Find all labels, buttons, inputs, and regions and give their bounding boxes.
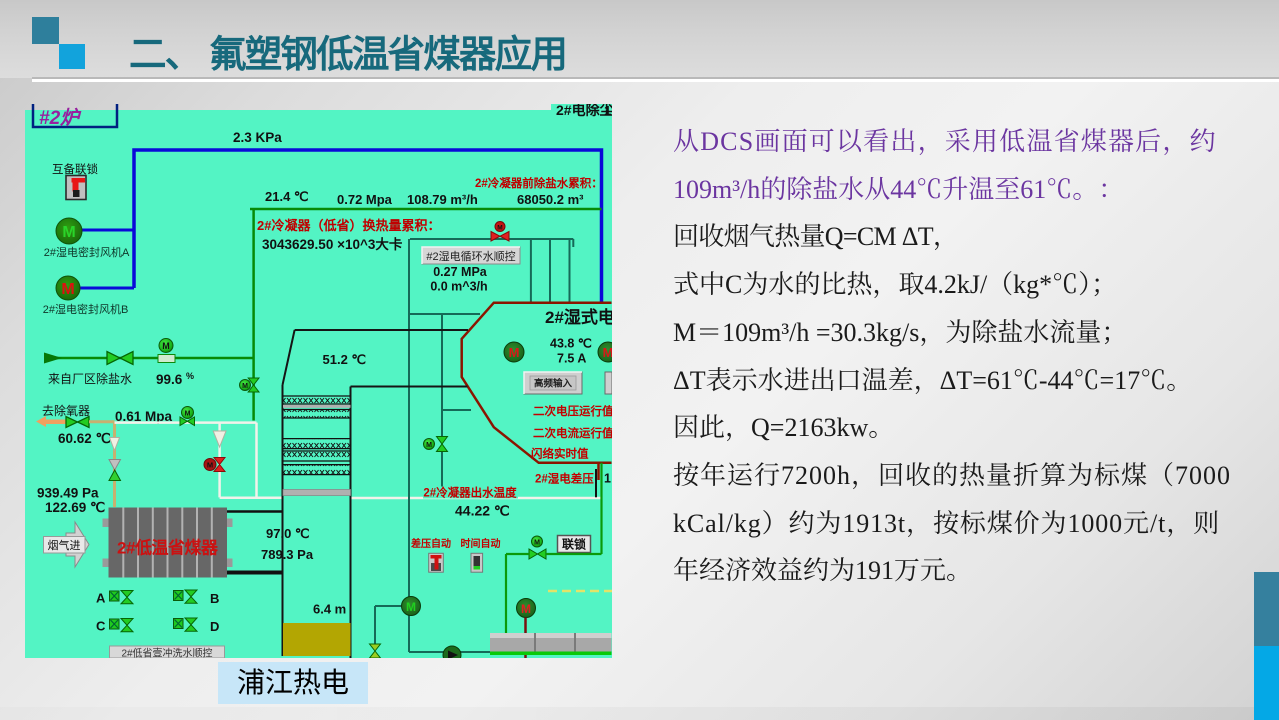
svg-text:烟气进: 烟气进 — [48, 538, 81, 552]
svg-text:M: M — [185, 411, 191, 418]
svg-text:联锁: 联锁 — [562, 537, 586, 552]
svg-text:2#湿电密封风机B: 2#湿电密封风机B — [43, 302, 129, 316]
svg-text:97.0 ℃: 97.0 ℃ — [266, 526, 310, 541]
svg-text:43.8 ℃: 43.8 ℃ — [550, 337, 592, 351]
svg-text:B: B — [210, 591, 219, 606]
svg-text:21.4 ℃: 21.4 ℃ — [265, 189, 309, 204]
svg-text:3043629.50 ×10^3大卡: 3043629.50 ×10^3大卡 — [262, 236, 403, 252]
svg-text:108.79 m³/h: 108.79 m³/h — [407, 192, 478, 207]
svg-text:#2炉: #2炉 — [39, 107, 82, 129]
svg-text:60.62 ℃: 60.62 ℃ — [58, 431, 112, 446]
svg-text:0.72 Mpa: 0.72 Mpa — [337, 192, 393, 207]
svg-text:44.22 ℃: 44.22 ℃ — [455, 503, 510, 519]
svg-text:M: M — [62, 224, 75, 241]
svg-text:M: M — [61, 281, 74, 298]
svg-text:7.5 A: 7.5 A — [557, 352, 586, 366]
svg-text:2#低温省煤器: 2#低温省煤器 — [117, 538, 219, 558]
svg-text:1: 1 — [604, 472, 611, 486]
svg-text:M: M — [534, 540, 540, 547]
svg-text:1: 1 — [604, 104, 611, 118]
svg-text:2#湿式电除尘: 2#湿式电除尘 — [545, 307, 612, 327]
svg-text:2#冷凝器出水温度: 2#冷凝器出水温度 — [423, 486, 517, 500]
svg-text:二次电压运行值: 二次电压运行值 — [533, 404, 612, 418]
svg-text:D: D — [210, 619, 219, 634]
svg-text:M: M — [162, 341, 170, 351]
svg-text:0.27 MPa: 0.27 MPa — [433, 265, 488, 279]
svg-text:来自厂区除盐水: 来自厂区除盐水 — [48, 371, 132, 386]
svg-text:M: M — [426, 442, 432, 449]
svg-text:2#湿电差压: 2#湿电差压 — [535, 472, 594, 486]
svg-text:高频输入: 高频输入 — [534, 378, 573, 390]
svg-text:122.69 ℃: 122.69 ℃ — [45, 500, 106, 515]
svg-text:2#湿电密封风机A: 2#湿电密封风机A — [44, 245, 130, 259]
svg-text:A: A — [96, 591, 106, 606]
svg-text:M: M — [509, 345, 520, 360]
svg-text:#2湿电循环水顺控: #2湿电循环水顺控 — [426, 249, 515, 263]
svg-text:939.49 Pa: 939.49 Pa — [37, 486, 99, 501]
svg-text:M: M — [242, 383, 248, 390]
svg-text:68050.2 m³: 68050.2 m³ — [517, 192, 584, 207]
svg-text:差压自动: 差压自动 — [411, 537, 451, 550]
svg-text:去除氧器: 去除氧器 — [42, 403, 90, 418]
svg-text:时间自动: 时间自动 — [461, 537, 501, 550]
svg-text:0.0 m^3/h: 0.0 m^3/h — [430, 280, 487, 294]
svg-text:2#冷凝器前除盐水累积：: 2#冷凝器前除盐水累积： — [475, 176, 603, 190]
svg-text:二次电流运行值: 二次电流运行值 — [533, 426, 612, 440]
svg-text:M: M — [406, 600, 416, 614]
svg-text:闪络实时值: 闪络实时值 — [531, 447, 589, 461]
svg-text:2#冷凝器（低省）换热量累积：: 2#冷凝器（低省）换热量累积： — [257, 218, 440, 233]
svg-text:M: M — [521, 602, 531, 616]
svg-text:互备联锁: 互备联锁 — [52, 162, 98, 176]
svg-text:51.2 ℃: 51.2 ℃ — [323, 352, 367, 367]
svg-text:M: M — [603, 345, 612, 360]
svg-text:2#低省壹冲洗水顺控: 2#低省壹冲洗水顺控 — [121, 647, 212, 659]
svg-text:C: C — [96, 619, 106, 634]
svg-text:6.4 m: 6.4 m — [313, 602, 346, 617]
svg-text:789.3 Pa: 789.3 Pa — [261, 547, 314, 562]
svg-text:%: % — [186, 371, 194, 381]
svg-text:M: M — [497, 225, 502, 232]
svg-text:99.6: 99.6 — [156, 372, 183, 387]
svg-text:2.3 KPa: 2.3 KPa — [233, 130, 282, 145]
svg-text:M: M — [207, 461, 213, 470]
